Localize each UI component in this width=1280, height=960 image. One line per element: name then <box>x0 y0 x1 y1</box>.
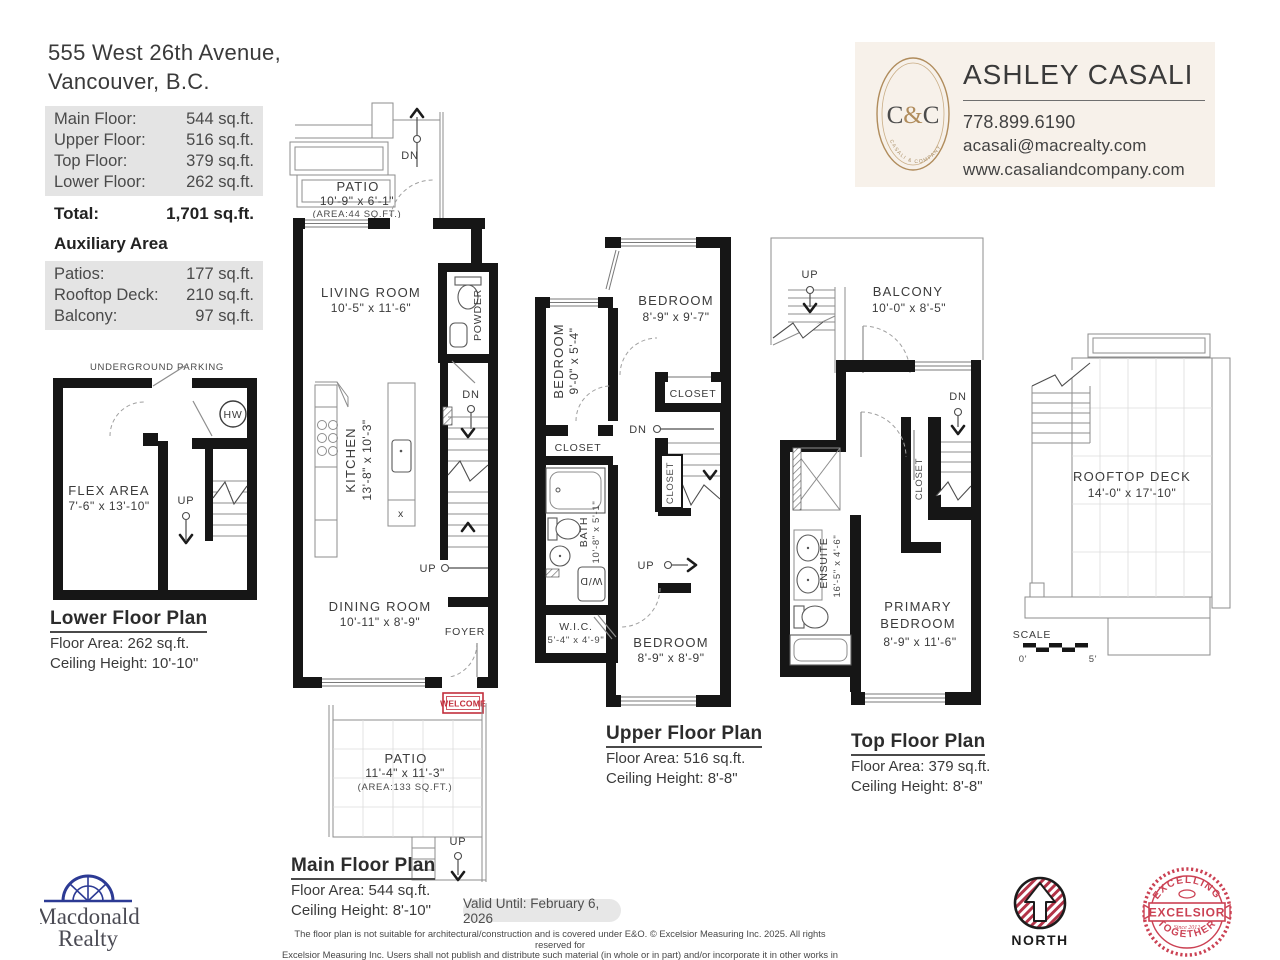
toilet-icon <box>794 606 828 628</box>
up-direction-main: UP <box>420 563 488 575</box>
north-compass-icon <box>1012 875 1068 931</box>
flex-area-label: FLEX AREA <box>68 483 150 498</box>
row-value: 379 sq.ft. <box>186 151 254 172</box>
plan-area: Floor Area: 544 sq.ft. <box>291 882 435 900</box>
plan-area: Floor Area: 516 sq.ft. <box>606 750 762 768</box>
sink-icon <box>550 546 570 566</box>
plan-title: Top Floor Plan <box>851 731 985 756</box>
row-value: 177 sq.ft. <box>186 264 254 285</box>
primary-bedroom-label2: BEDROOM <box>880 616 956 631</box>
scale-label: SCALE <box>1013 629 1051 641</box>
stairs <box>936 442 971 500</box>
plan-ceiling: Ceiling Height: 8'-10" <box>291 902 435 920</box>
sink-icon <box>797 535 819 561</box>
table-row: Main Floor: 544 sq.ft. <box>45 109 263 130</box>
main-floor-plan: DN PATIO 10'-9" x 6'-1" (AREA:44 SQ.FT.) <box>285 95 515 887</box>
closet-label: CLOSET <box>555 442 602 454</box>
row-label: Main Floor: <box>54 109 137 130</box>
scale-end: 5' <box>1089 654 1098 665</box>
plan-ceiling: Ceiling Height: 8'-8" <box>606 770 762 788</box>
svg-text:UP: UP <box>420 563 437 575</box>
svg-text:x: x <box>398 508 404 520</box>
seal-since-text: Since 2012 <box>1174 925 1201 931</box>
arch-icon <box>44 876 132 901</box>
seal-ribbon: EXCELSIOR <box>1144 903 1230 921</box>
closet-label: CLOSET <box>670 388 717 400</box>
disclaimer-line2: Excelsior Measuring Inc. Users shall not… <box>275 950 845 960</box>
bedroom2-label: BEDROOM <box>551 323 566 399</box>
dining-room-dims: 10'-11" x 8'-9" <box>340 615 420 629</box>
plan-title: Lower Floor Plan <box>50 608 207 633</box>
powder-label: POWDER <box>472 289 484 341</box>
lower-floor-caption: Lower Floor Plan Floor Area: 262 sq.ft. … <box>50 608 207 673</box>
foyer-label: FOYER <box>445 626 485 638</box>
living-room-label: LIVING ROOM <box>321 285 421 300</box>
agent-phone: 778.899.6190 <box>963 112 1076 133</box>
floor-areas-box: Main Floor: 544 sq.ft. Upper Floor: 516 … <box>45 106 263 196</box>
bedroom1-door-arc <box>620 338 657 375</box>
bedroom-door-arc <box>861 412 906 457</box>
ensuite-dims: 16'-5" x 4'-6" <box>832 535 843 598</box>
macdonald-realty-logo: Macdonald Realty <box>40 868 220 953</box>
primary-bedroom-dims: 8'-9" x 11'-6" <box>883 635 956 649</box>
hot-water-tank: HW <box>220 401 246 427</box>
living-room-dims: 10'-5" x 11'-6" <box>331 301 411 315</box>
logo-brand-curved: CASALI & COMPANY <box>888 139 943 165</box>
dn-direction: DN <box>629 424 714 436</box>
top-floor-plan: UP BALCONY 10'-0" x 8'-5" <box>768 230 988 730</box>
patio-top-label: PATIO <box>336 179 379 194</box>
address-line2: Vancouver, B.C. <box>48 67 281 96</box>
plan-ceiling: Ceiling Height: 8'-8" <box>851 778 990 796</box>
corner-window <box>606 250 619 290</box>
seal-mid-text: EXCELSIOR <box>1149 906 1226 920</box>
foyer-door-arc <box>442 643 477 678</box>
row-value: 210 sq.ft. <box>186 285 254 306</box>
disclaimer: The floor plan is not suitable for archi… <box>275 929 845 960</box>
floor-areas-table: Main Floor: 544 sq.ft. Upper Floor: 516 … <box>45 106 263 330</box>
kitchen-dims: 13'-8" x 10'-3" <box>360 419 374 500</box>
sink-icon <box>797 567 819 593</box>
patio-top-dims: 10'-9" x 6'-1" <box>320 194 394 208</box>
lower-floor-plan: UNDERGROUND PARKING HW <box>40 356 270 608</box>
address-line1: 555 West 26th Avenue, <box>48 38 281 67</box>
window <box>865 692 945 705</box>
bath-label: BATH <box>578 517 590 547</box>
rooftop-deck-label: ROOFTOP DECK <box>1073 469 1191 484</box>
patio-bottom-label: PATIO <box>384 751 427 766</box>
scale-bar: SCALE 0' 5' <box>1013 629 1097 665</box>
stove-icon <box>318 421 338 456</box>
row-label: Rooftop Deck: <box>54 285 159 306</box>
row-label: Balcony: <box>54 306 117 327</box>
wic-label: W.I.C. <box>559 621 592 633</box>
north-label: NORTH <box>1008 932 1072 948</box>
plan-area: Floor Area: 262 sq.ft. <box>50 635 207 653</box>
interior-stairs: DN <box>440 363 488 560</box>
exterior-stairs-top <box>295 103 440 138</box>
bedroom1-dims: 8'-9" x 9'-7" <box>643 310 710 324</box>
bedroom1-label: BEDROOM <box>638 293 714 308</box>
deck-stairs <box>1032 363 1090 443</box>
interior-wall <box>158 441 168 590</box>
plan-title: Main Floor Plan <box>291 855 435 880</box>
property-address: 555 West 26th Avenue, Vancouver, B.C. <box>48 38 281 96</box>
svg-text:WELCOME: WELCOME <box>440 699 486 709</box>
total-value: 1,701 sq.ft. <box>166 204 254 224</box>
agent-name: ASHLEY CASALI <box>963 59 1205 101</box>
excelsior-seal: · EXCELLING · · TOGETHER · EXCELSIOR Sin… <box>1140 865 1234 959</box>
primary-bedroom-label1: PRIMARY <box>884 599 951 614</box>
rooftop-deck-plan: ROOFTOP DECK 14'-0" x 17'-10" SCALE 0' 5… <box>1010 333 1255 668</box>
row-label: Lower Floor: <box>54 172 146 193</box>
underground-parking-label: UNDERGROUND PARKING <box>90 362 224 373</box>
auxiliary-box: Patios: 177 sq.ft. Rooftop Deck: 210 sq.… <box>45 261 263 330</box>
wic-dims: 5'-4" x 4'-9" <box>548 635 605 646</box>
window <box>550 297 598 308</box>
scale-start: 0' <box>1019 654 1028 665</box>
total-row: Total: 1,701 sq.ft. <box>45 204 263 224</box>
row-label: Patios: <box>54 264 104 285</box>
table-row: Rooftop Deck: 210 sq.ft. <box>45 285 263 306</box>
table-row: Upper Floor: 516 sq.ft. <box>45 130 263 151</box>
svg-text:W/D: W/D <box>580 575 603 587</box>
bedroom3-label: BEDROOM <box>633 635 709 650</box>
window <box>322 677 425 688</box>
upper-floor-caption: Upper Floor Plan Floor Area: 516 sq.ft. … <box>606 723 762 788</box>
row-value: 97 sq.ft. <box>195 306 254 327</box>
dn-direction-top: DN <box>401 109 423 167</box>
bedroom2-dims: 9'-0" x 5'-4" <box>567 328 581 395</box>
plan-ceiling: Ceiling Height: 10'-10" <box>50 655 207 673</box>
agent-website: www.casaliandcompany.com <box>963 160 1185 180</box>
up-direction-patio: UP <box>450 836 467 880</box>
bedroom3-door-arc <box>621 588 660 627</box>
svg-text:DN: DN <box>462 389 480 401</box>
brand-line2: Realty <box>58 926 119 951</box>
total-label: Total: <box>54 204 99 224</box>
disclaimer-line1: The floor plan is not suitable for archi… <box>275 929 845 950</box>
dining-room-label: DINING ROOM <box>329 599 432 614</box>
svg-text:UP: UP <box>178 495 195 507</box>
svg-text:HW: HW <box>223 409 242 421</box>
table-row: Patios: 177 sq.ft. <box>45 264 263 285</box>
balcony-dims: 10'-0" x 8'-5" <box>872 301 946 315</box>
agent-logo: C&C CASALI & COMPANY <box>867 50 957 180</box>
row-value: 516 sq.ft. <box>186 130 254 151</box>
valid-until-badge: Valid Until: February 6, 2026 <box>463 899 621 922</box>
closet-label: CLOSET <box>665 462 676 504</box>
valid-until-text: Valid Until: February 6, 2026 <box>463 896 621 926</box>
window <box>621 695 696 707</box>
tub-icon <box>790 635 851 665</box>
seal-emblem-icon <box>1179 890 1195 898</box>
upper-floor-plan: CLOSET CLOSET DN CLOSET <box>528 225 743 707</box>
svg-text:UP: UP <box>802 269 819 281</box>
patio-bottom-dims: 11'-4" x 11'-3" <box>365 766 445 780</box>
main-floor-caption: Main Floor Plan Floor Area: 544 sq.ft. C… <box>291 855 435 920</box>
balcony-label: BALCONY <box>873 284 944 299</box>
up-direction: UP <box>638 559 696 572</box>
agent-email: acasali@macrealty.com <box>963 136 1147 156</box>
logo-monogram: C&C <box>887 102 940 129</box>
floor-plan-sheet: 555 West 26th Avenue, Vancouver, B.C. Ma… <box>0 0 1280 960</box>
bath-dims: 10'-8" x 5'-1" <box>591 501 602 564</box>
exterior-stairs <box>773 290 835 338</box>
row-label: Upper Floor: <box>54 130 146 151</box>
row-value: 544 sq.ft. <box>186 109 254 130</box>
welcome-mat: WELCOME <box>440 693 486 713</box>
dn-direction: DN <box>949 391 967 434</box>
window <box>305 218 368 229</box>
svg-text:DN: DN <box>629 424 647 436</box>
auxiliary-title: Auxiliary Area <box>45 234 263 254</box>
window <box>915 360 971 372</box>
plan-area: Floor Area: 379 sq.ft. <box>851 758 990 776</box>
svg-text:UP: UP <box>638 560 655 572</box>
washer-dryer-icon: W/D <box>578 567 605 601</box>
bedroom2-door-arc <box>576 386 611 421</box>
flex-area-dims: 7'-6" x 13'-10" <box>68 499 149 513</box>
plan-title: Upper Floor Plan <box>606 723 762 748</box>
toilet-icon <box>548 518 580 540</box>
row-value: 262 sq.ft. <box>186 172 254 193</box>
table-row: Lower Floor: 262 sq.ft. <box>45 172 263 193</box>
top-floor-caption: Top Floor Plan Floor Area: 379 sq.ft. Ce… <box>851 731 990 796</box>
patio-bottom-area: (AREA:133 SQ.FT.) <box>358 782 453 793</box>
ensuite-label: ENSUITE <box>818 537 830 588</box>
shower-icon <box>793 448 840 510</box>
kitchen-label: KITCHEN <box>343 427 358 492</box>
table-row: Top Floor: 379 sq.ft. <box>45 151 263 172</box>
svg-text:DN: DN <box>401 150 419 162</box>
table-row: Balcony: 97 sq.ft. <box>45 306 263 327</box>
row-label: Top Floor: <box>54 151 127 172</box>
window <box>621 237 696 248</box>
svg-text:DN: DN <box>949 391 967 403</box>
sink-icon <box>392 440 411 472</box>
closet-label: CLOSET <box>914 458 925 500</box>
bedroom3-dims: 8'-9" x 8'-9" <box>638 651 705 665</box>
agent-card: C&C CASALI & COMPANY ASHLEY CASALI 778.8… <box>855 42 1215 187</box>
svg-text:UP: UP <box>450 836 467 848</box>
rooftop-deck-dims: 14'-0" x 17'-10" <box>1088 486 1176 500</box>
